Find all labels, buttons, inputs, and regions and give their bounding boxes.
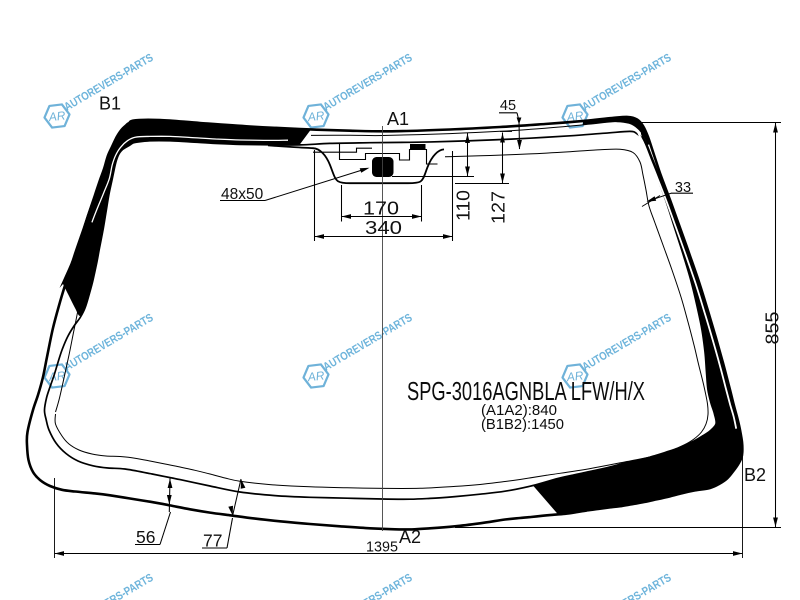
svg-text:(B1B2):1450: (B1B2):1450: [481, 416, 564, 433]
svg-text:340: 340: [365, 217, 402, 238]
svg-text:B1: B1: [99, 94, 121, 114]
svg-text:1395: 1395: [366, 540, 398, 556]
svg-text:AR: AR: [47, 108, 67, 124]
svg-text:45: 45: [500, 98, 516, 114]
svg-text:A2: A2: [399, 527, 421, 547]
svg-text:AR: AR: [306, 108, 326, 124]
svg-text:855: 855: [763, 312, 783, 345]
svg-text:110: 110: [454, 190, 474, 221]
svg-text:127: 127: [489, 191, 509, 224]
svg-text:170: 170: [363, 198, 399, 219]
svg-text:A1: A1: [387, 109, 409, 129]
svg-text:B2: B2: [744, 465, 766, 485]
svg-text:AR: AR: [306, 368, 326, 384]
